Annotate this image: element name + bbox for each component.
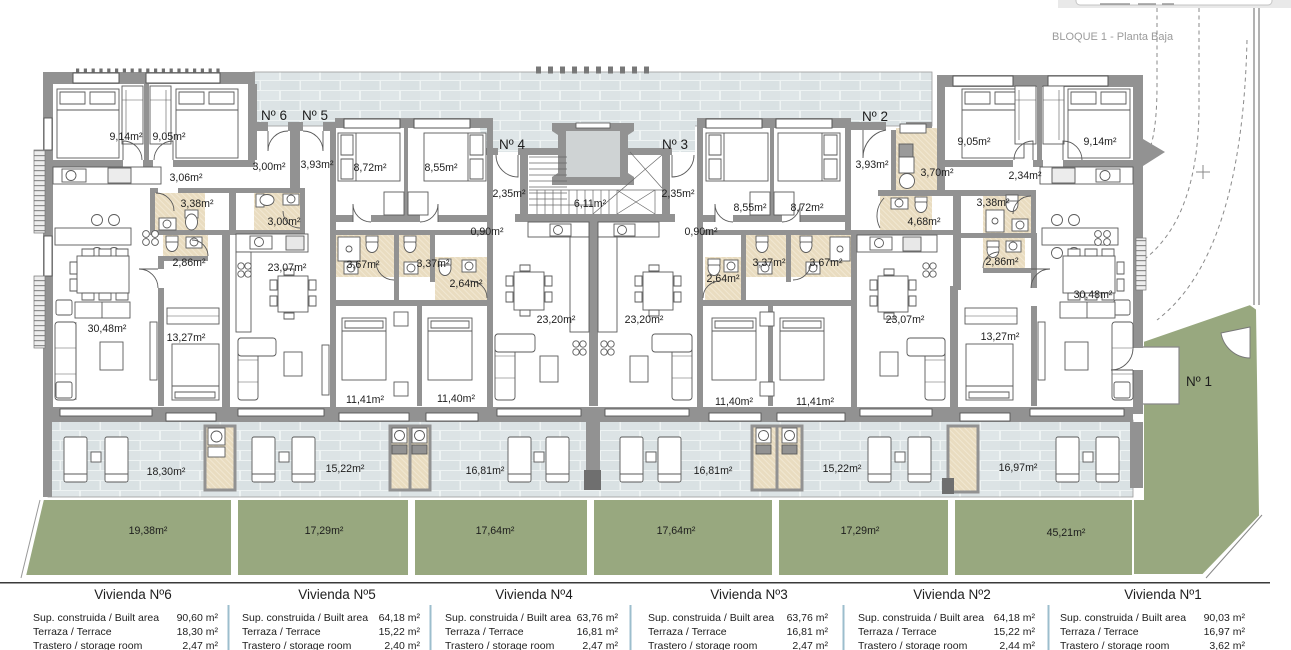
svg-text:23,20m²: 23,20m² xyxy=(625,314,664,326)
svg-text:Trastero / storage room: Trastero / storage room xyxy=(445,640,555,650)
svg-text:23,07m²: 23,07m² xyxy=(268,262,307,274)
svg-text:Nº 1: Nº 1 xyxy=(1186,374,1212,389)
svg-text:3,37m²: 3,37m² xyxy=(753,257,786,269)
svg-text:3,38m²: 3,38m² xyxy=(977,197,1010,209)
svg-text:2,47 m²: 2,47 m² xyxy=(182,640,218,650)
svg-text:17,29m²: 17,29m² xyxy=(305,525,344,537)
svg-text:6,11m²: 6,11m² xyxy=(574,198,607,210)
svg-text:16,81m²: 16,81m² xyxy=(466,465,505,477)
svg-text:17,64m²: 17,64m² xyxy=(476,525,515,537)
svg-text:30,48m²: 30,48m² xyxy=(88,323,127,335)
svg-text:30,48m²: 30,48m² xyxy=(1074,289,1113,301)
svg-text:Sup. construida / Built area: Sup. construida / Built area xyxy=(1060,612,1186,624)
svg-text:2,64m²: 2,64m² xyxy=(707,273,740,285)
svg-text:16,81 m²: 16,81 m² xyxy=(577,626,619,638)
svg-text:18,30 m²: 18,30 m² xyxy=(177,626,219,638)
svg-text:0,90m²: 0,90m² xyxy=(685,226,718,238)
svg-text:64,18 m²: 64,18 m² xyxy=(994,612,1036,624)
svg-text:2,35m²: 2,35m² xyxy=(662,188,695,200)
svg-text:8,72m²: 8,72m² xyxy=(354,162,387,174)
svg-text:16,81 m²: 16,81 m² xyxy=(787,626,829,638)
svg-text:Terraza / Terrace: Terraza / Terrace xyxy=(242,626,321,638)
svg-text:Terraza / Terrace: Terraza / Terrace xyxy=(445,626,524,638)
svg-text:63,76 m²: 63,76 m² xyxy=(577,612,619,624)
svg-text:Sup. construida / Built area: Sup. construida / Built area xyxy=(242,612,368,624)
svg-text:2,86m²: 2,86m² xyxy=(173,257,206,269)
svg-text:2,47 m²: 2,47 m² xyxy=(792,640,828,650)
svg-text:3,38m²: 3,38m² xyxy=(181,198,214,210)
svg-text:3,93m²: 3,93m² xyxy=(856,159,889,171)
svg-text:Trastero / storage room: Trastero / storage room xyxy=(858,640,968,650)
svg-text:90,60 m²: 90,60 m² xyxy=(177,612,219,624)
svg-text:Sup. construida / Built area: Sup. construida / Built area xyxy=(33,612,159,624)
svg-text:3,70m²: 3,70m² xyxy=(921,167,954,179)
svg-text:Vivienda Nº5: Vivienda Nº5 xyxy=(298,587,375,602)
svg-text:3,00m²: 3,00m² xyxy=(268,216,301,228)
svg-text:3,62 m²: 3,62 m² xyxy=(1209,640,1245,650)
svg-text:45,21m²: 45,21m² xyxy=(1047,527,1086,539)
svg-text:11,41m²: 11,41m² xyxy=(796,396,835,408)
svg-text:4,68m²: 4,68m² xyxy=(908,216,941,228)
svg-text:15,22 m²: 15,22 m² xyxy=(379,626,421,638)
svg-text:2,64m²: 2,64m² xyxy=(450,278,483,290)
svg-text:16,97m²: 16,97m² xyxy=(999,462,1038,474)
svg-text:Trastero / storage room: Trastero / storage room xyxy=(242,640,352,650)
svg-text:9,05m²: 9,05m² xyxy=(958,136,991,148)
svg-text:BLOQUE 1 - Planta Baja: BLOQUE 1 - Planta Baja xyxy=(1052,31,1174,43)
svg-text:3,67m²: 3,67m² xyxy=(347,259,380,271)
svg-text:Sup. construida / Built area: Sup. construida / Built area xyxy=(445,612,571,624)
svg-text:9,05m²: 9,05m² xyxy=(153,131,186,143)
svg-text:90,03 m²: 90,03 m² xyxy=(1204,612,1246,624)
svg-text:Trastero / storage room: Trastero / storage room xyxy=(648,640,758,650)
svg-text:Nº 3: Nº 3 xyxy=(662,137,688,152)
svg-text:Nº 4: Nº 4 xyxy=(499,137,525,152)
svg-text:Trastero / storage room: Trastero / storage room xyxy=(33,640,143,650)
svg-text:Nº 6: Nº 6 xyxy=(261,108,287,123)
svg-text:3,67m²: 3,67m² xyxy=(810,257,843,269)
svg-text:63,76 m²: 63,76 m² xyxy=(787,612,829,624)
svg-text:11,40m²: 11,40m² xyxy=(437,393,476,405)
svg-text:3,06m²: 3,06m² xyxy=(170,172,203,184)
svg-text:13,27m²: 13,27m² xyxy=(167,332,206,344)
svg-text:15,22m²: 15,22m² xyxy=(823,463,862,475)
svg-text:Terraza / Terrace: Terraza / Terrace xyxy=(33,626,112,638)
svg-text:19,38m²: 19,38m² xyxy=(129,525,168,537)
svg-text:Terraza / Terrace: Terraza / Terrace xyxy=(858,626,937,638)
svg-text:13,27m²: 13,27m² xyxy=(981,331,1020,343)
svg-text:16,81m²: 16,81m² xyxy=(694,465,733,477)
svg-text:Vivienda Nº3: Vivienda Nº3 xyxy=(710,587,787,602)
svg-text:Sup. construida / Built area: Sup. construida / Built area xyxy=(858,612,984,624)
svg-text:Terraza / Terrace: Terraza / Terrace xyxy=(648,626,727,638)
svg-text:2,47 m²: 2,47 m² xyxy=(582,640,618,650)
svg-text:Trastero / storage room: Trastero / storage room xyxy=(1060,640,1170,650)
svg-text:2,86m²: 2,86m² xyxy=(986,256,1019,268)
svg-text:23,07m²: 23,07m² xyxy=(886,314,925,326)
svg-text:15,22m²: 15,22m² xyxy=(326,463,365,475)
svg-text:15,22 m²: 15,22 m² xyxy=(994,626,1036,638)
svg-text:64,18 m²: 64,18 m² xyxy=(379,612,421,624)
svg-text:Vivienda Nº1: Vivienda Nº1 xyxy=(1124,587,1201,602)
svg-text:3,93m²: 3,93m² xyxy=(301,159,334,171)
svg-text:3,37m²: 3,37m² xyxy=(417,258,450,270)
svg-text:17,64m²: 17,64m² xyxy=(657,525,696,537)
svg-text:16,97 m²: 16,97 m² xyxy=(1204,626,1246,638)
svg-text:8,72m²: 8,72m² xyxy=(791,202,824,214)
svg-text:Sup. construida / Built area: Sup. construida / Built area xyxy=(648,612,774,624)
svg-text:Nº 2: Nº 2 xyxy=(862,109,888,124)
svg-text:0,90m²: 0,90m² xyxy=(471,226,504,238)
svg-text:18,30m²: 18,30m² xyxy=(147,466,186,478)
svg-text:11,40m²: 11,40m² xyxy=(715,396,754,408)
svg-text:Terraza / Terrace: Terraza / Terrace xyxy=(1060,626,1139,638)
svg-text:Nº 5: Nº 5 xyxy=(302,108,328,123)
svg-text:Vivienda Nº2: Vivienda Nº2 xyxy=(913,587,990,602)
svg-text:2,40 m²: 2,40 m² xyxy=(384,640,420,650)
svg-text:2,35m²: 2,35m² xyxy=(493,188,526,200)
svg-text:3,00m²: 3,00m² xyxy=(253,161,286,173)
svg-text:Vivienda Nº6: Vivienda Nº6 xyxy=(94,587,171,602)
svg-text:11,41m²: 11,41m² xyxy=(346,394,385,406)
svg-text:Vivienda Nº4: Vivienda Nº4 xyxy=(495,587,573,602)
svg-text:23,20m²: 23,20m² xyxy=(537,314,576,326)
svg-text:9,14m²: 9,14m² xyxy=(110,131,143,143)
svg-text:8,55m²: 8,55m² xyxy=(425,162,458,174)
svg-text:17,29m²: 17,29m² xyxy=(841,525,880,537)
svg-text:8,55m²: 8,55m² xyxy=(734,202,767,214)
svg-text:2,44 m²: 2,44 m² xyxy=(999,640,1035,650)
svg-text:2,34m²: 2,34m² xyxy=(1009,170,1042,182)
svg-text:9,14m²: 9,14m² xyxy=(1084,136,1117,148)
